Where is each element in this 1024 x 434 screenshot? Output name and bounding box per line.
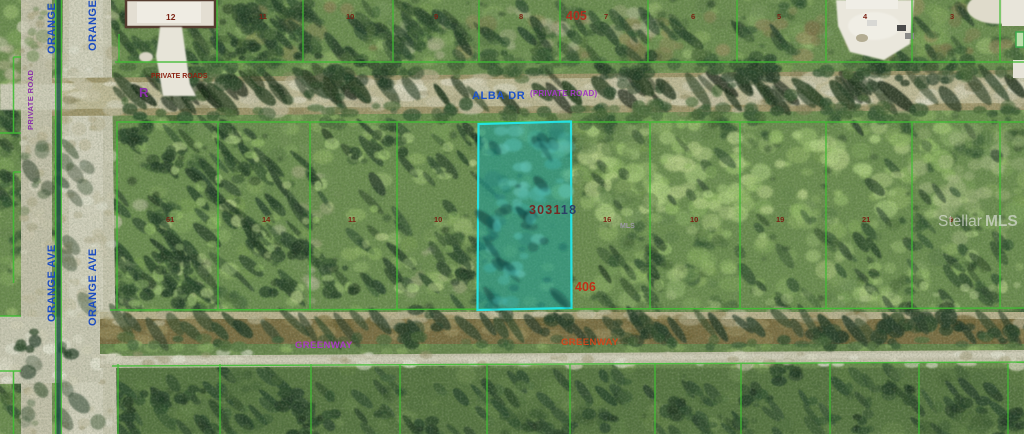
svg-text:16: 16: [603, 215, 611, 224]
svg-text:11: 11: [348, 215, 356, 224]
svg-text:R: R: [139, 85, 149, 100]
svg-text:ORANGE AVE: ORANGE AVE: [87, 248, 99, 326]
svg-text:12: 12: [166, 12, 176, 22]
svg-text:ALBA DR: ALBA DR: [472, 90, 525, 102]
svg-text:9: 9: [434, 12, 438, 21]
svg-text:10: 10: [346, 12, 354, 21]
svg-text:PRIVATE ROAD: PRIVATE ROAD: [26, 69, 35, 130]
svg-text:8: 8: [519, 12, 523, 21]
svg-text:10: 10: [434, 215, 442, 224]
svg-text:5: 5: [777, 12, 781, 21]
svg-text:14: 14: [262, 215, 271, 224]
svg-text:ORANGE AVE: ORANGE AVE: [46, 0, 58, 54]
svg-text:6: 6: [691, 12, 695, 21]
svg-text:PRIVATE ROADS: PRIVATE ROADS: [151, 73, 208, 80]
svg-text:61: 61: [166, 215, 174, 224]
svg-text:MLS: MLS: [620, 223, 635, 230]
svg-text:303118: 303118: [529, 203, 577, 217]
svg-text:11: 11: [259, 12, 267, 21]
svg-text:7: 7: [604, 12, 608, 21]
svg-text:21: 21: [862, 215, 870, 224]
svg-text:406: 406: [575, 280, 596, 294]
svg-text:ORANGE AVE: ORANGE AVE: [87, 0, 99, 51]
svg-text:(PRIVATE ROAD): (PRIVATE ROAD): [530, 89, 598, 98]
svg-text:ORANGE AVE: ORANGE AVE: [46, 244, 58, 322]
svg-text:10: 10: [690, 215, 698, 224]
svg-text:StellarMLS: StellarMLS: [938, 213, 1018, 230]
svg-text:3: 3: [950, 12, 954, 21]
svg-text:19: 19: [776, 215, 784, 224]
svg-text:GREENWAY: GREENWAY: [561, 337, 619, 348]
svg-text:GREENWAY: GREENWAY: [295, 340, 353, 351]
svg-text:405: 405: [566, 9, 587, 23]
